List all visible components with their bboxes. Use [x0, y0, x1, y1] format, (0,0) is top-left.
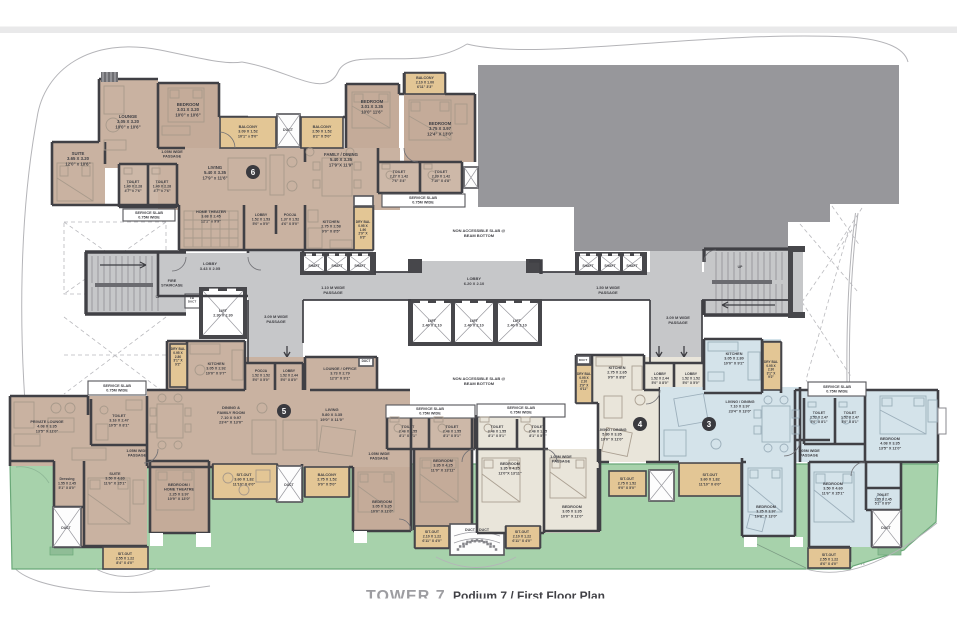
svg-text:1.05M WIDEPASSAGE: 1.05M WIDEPASSAGE [161, 150, 183, 159]
svg-text:SHAFT: SHAFT [354, 264, 366, 268]
svg-text:BEDROOM4.08 X 3.3513'5" X 11'0: BEDROOM4.08 X 3.3513'5" X 11'0" [879, 437, 902, 450]
svg-text:LOUNGE3.05 X 3.2010'0" x 10'6": LOUNGE3.05 X 3.2010'0" x 10'6" [115, 114, 140, 129]
svg-text:KITCHEN3.05 X 2.9210'0" X 9'7": KITCHEN3.05 X 2.9210'0" X 9'7" [206, 362, 227, 375]
svg-text:SIT-OUT2.55 X 1.228'4" X 4'0": SIT-OUT2.55 X 1.228'4" X 4'0" [116, 552, 134, 565]
svg-text:5: 5 [282, 407, 287, 416]
svg-text:DUCT: DUCT [283, 128, 294, 132]
svg-text:DUCT = DUCT: DUCT = DUCT [465, 528, 490, 532]
svg-text:BALCONY2.75 X 1.529'0" X 5'0": BALCONY2.75 X 1.529'0" X 5'0" [317, 473, 337, 486]
svg-text:3.09 M WIDEPASSAGE: 3.09 M WIDEPASSAGE [666, 315, 690, 325]
svg-text:4: 4 [638, 420, 643, 429]
svg-text:Dressing1.55 X 2.455'1" X 8'0": Dressing1.55 X 2.455'1" X 8'0" [58, 477, 76, 490]
svg-text:SHAFT: SHAFT [626, 264, 638, 268]
svg-text:SERVICE SLAB0.75M WIDE: SERVICE SLAB0.75M WIDE [135, 211, 163, 220]
svg-text:BEDROOM3.35 X 4.2511'0"X 13'11: BEDROOM3.35 X 4.2511'0"X 13'11" [498, 462, 522, 475]
svg-text:BALCONY2.10 X 1.006'11" 3'3": BALCONY2.10 X 1.006'11" 3'3" [416, 76, 435, 89]
svg-text:1.05M WIDEPASSAGE: 1.05M WIDEPASSAGE [126, 449, 148, 458]
svg-text:DUCT: DUCT [881, 526, 891, 530]
svg-text:3: 3 [707, 420, 712, 429]
svg-text:SERVICE SLAB0.75M WIDE: SERVICE SLAB0.75M WIDE [103, 384, 131, 393]
svg-text:1.50 M WIDEPASSAGE: 1.50 M WIDEPASSAGE [596, 285, 620, 295]
svg-text:BEDROOM3.25 X 3.9710'8" X 13'0: BEDROOM3.25 X 3.9710'8" X 13'0" [755, 505, 778, 518]
svg-text:KITCHEN3.05 X 2.8010'0" X 9'2": KITCHEN3.05 X 2.8010'0" X 9'2" [724, 352, 745, 365]
svg-text:DUCT: DUCT [362, 359, 371, 363]
svg-text:UP: UP [738, 265, 743, 269]
svg-text:DUCT: DUCT [61, 526, 71, 530]
svg-text:SERVICE SLAB0.75M WIDE: SERVICE SLAB0.75M WIDE [409, 196, 437, 205]
svg-text:1.05M WIDEPASSAGE: 1.05M WIDEPASSAGE [550, 455, 572, 464]
svg-text:SERVICE SLAB0.75M WIDE: SERVICE SLAB0.75M WIDE [416, 407, 444, 416]
svg-text:6: 6 [251, 168, 256, 177]
svg-text:BEDROOM3.01 X 3.3510'0" 11'6": BEDROOM3.01 X 3.3510'0" 11'6" [361, 99, 384, 114]
svg-text:UP: UP [156, 295, 161, 299]
svg-text:1.05M WIDEPASSAGE: 1.05M WIDEPASSAGE [368, 452, 390, 461]
svg-text:BEDROOM3.01 X 3.2010'0" x 10'6: BEDROOM3.01 X 3.2010'0" x 10'6" [175, 102, 200, 117]
svg-text:BALCONY2.50 X 1.528'2" X 5'0": BALCONY2.50 X 1.528'2" X 5'0" [312, 125, 332, 138]
svg-text:BEDROOM3.35 X 4.2511'0" X 13'1: BEDROOM3.35 X 4.2511'0" X 13'11" [431, 459, 456, 472]
svg-text:BEDROOM3.05 X 3.3510'0" X 11'0: BEDROOM3.05 X 3.3510'0" X 11'0" [371, 500, 394, 513]
svg-text:SHAFT: SHAFT [582, 264, 594, 268]
svg-text:BALCONY3.09 X 1.5210'1" x 5'0": BALCONY3.09 X 1.5210'1" x 5'0" [238, 125, 258, 138]
svg-text:SHAFT: SHAFT [308, 264, 320, 268]
svg-text:3.09 M WIDEPASSAGE: 3.09 M WIDEPASSAGE [264, 314, 288, 324]
svg-text:DUCT: DUCT [579, 358, 587, 362]
svg-text:SERVICE SLAB0.75M WIDE: SERVICE SLAB0.75M WIDE [507, 406, 535, 415]
svg-text:KITCHEN2.75 X 2.589'0" X 8'5": KITCHEN2.75 X 2.589'0" X 8'5" [321, 220, 340, 233]
svg-text:DUCT: DUCT [284, 483, 294, 487]
svg-text:1.05M WIDEPASSAGE: 1.05M WIDEPASSAGE [798, 449, 820, 458]
svg-text:SIT-OUT2.10 X 1.226'11" X 4'0": SIT-OUT2.10 X 1.226'11" X 4'0" [512, 530, 532, 543]
svg-text:SIT-OUT2.10 X 1.226'11" X 4'0": SIT-OUT2.10 X 1.226'11" X 4'0" [422, 530, 442, 543]
svg-text:BEDROOM3.50 X 4.6011'6" X 15'1: BEDROOM3.50 X 4.6011'6" X 15'1" [822, 482, 845, 495]
svg-text:1.10 M WIDEPASSAGE: 1.10 M WIDEPASSAGE [321, 285, 345, 295]
svg-text:SHAFT: SHAFT [331, 264, 343, 268]
svg-text:SHAFT: SHAFT [604, 264, 616, 268]
svg-text:KITCHEN2.75 X 2.659'0" X 8'8": KITCHEN2.75 X 2.659'0" X 8'8" [607, 366, 626, 379]
svg-text:BEDROOM3.75 X 3.9712'4" X 13'0: BEDROOM3.75 X 3.9712'4" X 13'0" [427, 121, 453, 136]
svg-text:SERVICE SLAB0.75M WIDE: SERVICE SLAB0.75M WIDE [823, 385, 851, 394]
svg-text:SIT-OUT2.55 X 1.228'6" X 4'0": SIT-OUT2.55 X 1.228'6" X 4'0" [820, 553, 838, 566]
svg-text:SIT-OUT2.75 X 1.529'0" X 5'0": SIT-OUT2.75 X 1.529'0" X 5'0" [618, 477, 636, 490]
svg-text:BEDROOM3.05 X 3.3510'0" X 11'0: BEDROOM3.05 X 3.3510'0" X 11'0" [561, 505, 584, 518]
